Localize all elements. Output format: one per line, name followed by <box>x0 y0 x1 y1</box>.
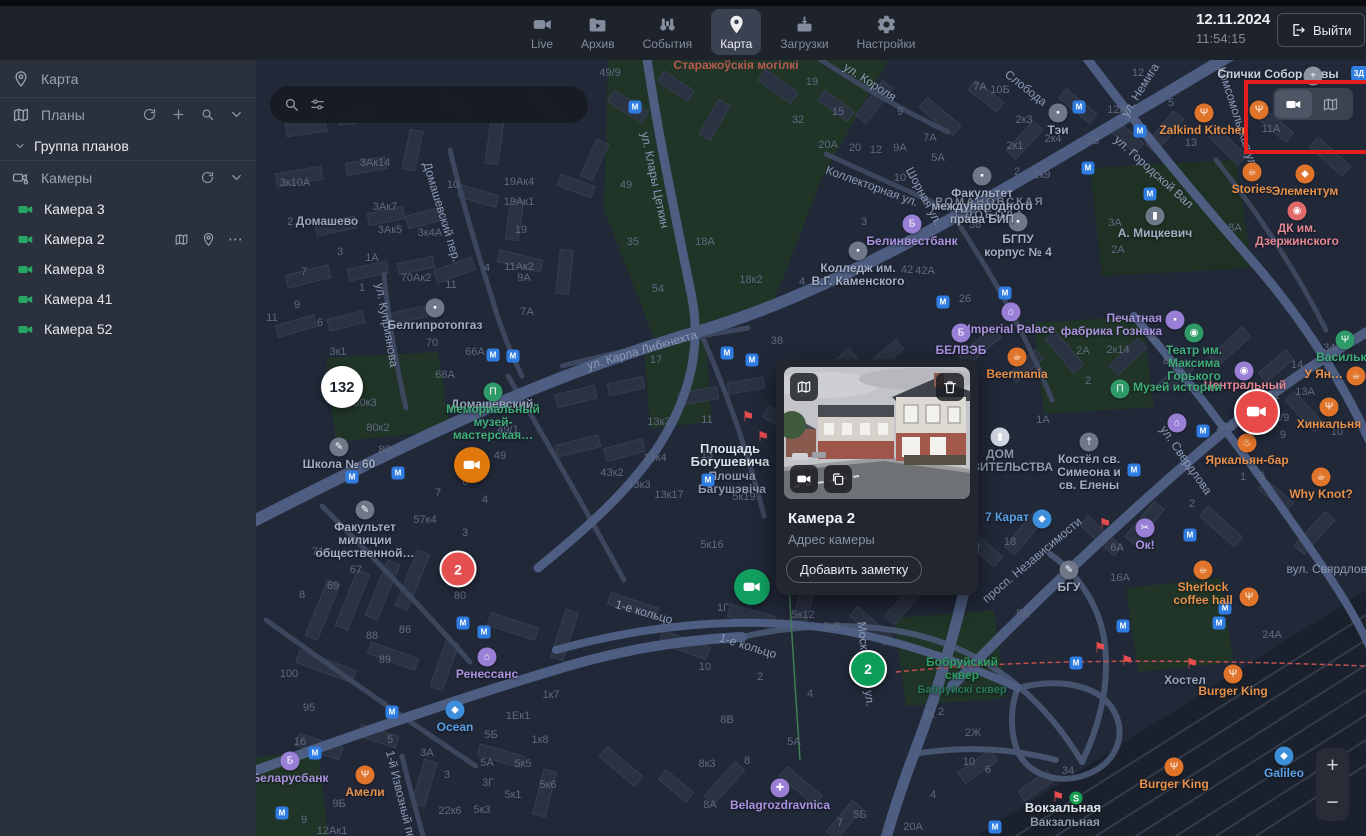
building-number-label: 80к1 <box>378 444 401 456</box>
building-number-label: 1к7 <box>542 689 559 701</box>
transit-stop-icon: М <box>1070 657 1083 670</box>
building-number-label: 54 <box>652 283 664 295</box>
building-number-label: 9 <box>1280 429 1286 441</box>
building-number-label: 70 <box>426 337 438 349</box>
poi-goznak-factory-icon[interactable]: ▪ <box>1166 311 1185 330</box>
poi-elementum-icon[interactable]: ◆ <box>1296 165 1315 184</box>
map-canvas[interactable]: Старажоўскія могілкіул. КороляСлободаул.… <box>256 60 1366 836</box>
building-number-label: 18А <box>695 236 715 248</box>
building-number-label: 16 <box>294 736 306 748</box>
flag-marker-icon: ⚑ <box>1099 516 1112 533</box>
building-number-label: 80 <box>454 590 466 602</box>
building-number-label: 14 <box>1291 359 1303 371</box>
building-number-label: 2К <box>923 709 936 721</box>
poi-bgpu-label: БГПУкорпус № 4 <box>984 233 1052 259</box>
poi-galileo-icon[interactable]: ◆ <box>1275 747 1294 766</box>
transit-stop-icon: М <box>1082 162 1095 175</box>
transit-stop-icon: М <box>457 617 470 630</box>
camera-name: Камера 52 <box>44 321 244 337</box>
poi-why-knot-label: Why Knot? <box>1289 488 1352 501</box>
camera-marker[interactable] <box>454 447 490 483</box>
building-number-label: 4 <box>484 262 490 274</box>
chevron-down-icon[interactable] <box>229 170 244 185</box>
transit-stop-icon: М <box>746 354 759 367</box>
building-number-label: 1А <box>365 252 378 264</box>
poi-burger-king-1-icon[interactable]: Ψ <box>1224 665 1243 684</box>
transit-stop-icon: М <box>1144 188 1157 201</box>
poi-vasilki-label: Васильки <box>1316 351 1366 364</box>
nav-settings[interactable]: Настройки <box>848 9 925 55</box>
poi-why-knot-icon[interactable]: ☕ <box>1312 468 1331 487</box>
poi-burger-king-2-icon[interactable]: Ψ <box>1165 758 1184 777</box>
building-number-label: 2к14 <box>1106 344 1129 356</box>
poi-dom-pravitelstva-icon[interactable]: ▮ <box>991 428 1010 447</box>
building-number-label: 12 <box>870 144 882 156</box>
nav-label: Настройки <box>857 38 916 50</box>
nav-downloads[interactable]: Загрузки <box>771 9 837 55</box>
map-cluster-marker[interactable]: 2 <box>849 650 887 688</box>
search-input[interactable] <box>335 96 575 114</box>
poi-musey-istorii-icon[interactable]: Π <box>1111 380 1130 399</box>
flag-marker-icon: ⚑ <box>742 409 755 426</box>
refresh-icon[interactable] <box>200 170 215 185</box>
chevron-down-icon[interactable] <box>229 107 244 122</box>
building-number-label: 49 <box>494 450 506 462</box>
folded-map-icon <box>1322 96 1339 113</box>
building-number-label: 32 <box>792 114 804 126</box>
poi-tei-label: Тэи <box>1047 124 1068 137</box>
sidebar-item-plans[interactable]: Планы <box>0 98 256 131</box>
flag-marker-icon: ⚑ <box>1094 640 1107 657</box>
building-number-label: 5к6 <box>539 779 556 791</box>
flag-marker-icon: ⚑ <box>1052 789 1065 806</box>
building-number-label: 49 <box>620 179 632 191</box>
transit-stop-icon: М <box>999 287 1012 300</box>
poi-hinkalnya-icon[interactable]: Ψ <box>1320 398 1339 417</box>
building-number-label: 5А <box>480 757 493 769</box>
camera-marker[interactable] <box>734 569 770 605</box>
camera-status-icon <box>17 201 34 218</box>
poi-kostel-simeona-icon[interactable]: † <box>1080 433 1099 452</box>
poi-fakultet-milicii-icon[interactable]: ✎ <box>356 501 375 520</box>
poi-bgu-label: БГУ <box>1058 581 1081 594</box>
building-number-label: 86 <box>399 624 411 636</box>
poi-mickiewicz-monument-label: А. Мицкевич <box>1118 227 1192 240</box>
building-number-label: 7А <box>923 132 936 144</box>
building-number-label: 5к12 <box>791 609 814 621</box>
poi-college-kamenskogo-icon[interactable]: ▪ <box>849 242 868 261</box>
video-camera-icon <box>796 471 812 487</box>
transit-stop-icon: М <box>702 474 715 487</box>
building-number-label: 20 <box>849 142 861 154</box>
nav-live[interactable]: Live <box>522 9 562 55</box>
logout-button[interactable]: Выйти <box>1277 13 1365 47</box>
search-icon[interactable] <box>200 107 215 122</box>
gear-icon <box>876 14 897 35</box>
building-number-label: 70Ак2 <box>401 272 432 284</box>
map-search[interactable] <box>270 86 588 123</box>
show-on-plan-button[interactable] <box>790 373 818 401</box>
building-number-label: 5к3 <box>473 804 490 816</box>
poi-ameli-label: Амели <box>345 786 384 799</box>
building-number-label: 9Б <box>332 798 345 810</box>
folded-map-icon <box>12 106 30 124</box>
poi-goznak-factory-label: Печатнаяфабрика Гознака <box>1061 312 1162 338</box>
poi-ok-salon-icon[interactable]: ✂ <box>1136 519 1155 538</box>
poi-hotel-east-icon[interactable]: ⌂ <box>1168 414 1187 433</box>
sidebar-map-label: Карта <box>41 71 244 87</box>
poi-school-60-icon[interactable]: ✎ <box>330 438 349 457</box>
poi-renaissance-label: Ренессанс <box>456 668 518 681</box>
building-number-label: 10 <box>963 756 975 768</box>
building-number-label: 15 <box>832 106 844 118</box>
poi-renaissance-icon[interactable]: ⌂ <box>478 648 497 667</box>
building-number-label: 5А <box>1016 608 1029 620</box>
building-number-label: 26 <box>959 293 971 305</box>
poi-restaurant-east-icon[interactable]: Ψ <box>1240 588 1259 607</box>
building-number-label: 4 <box>930 789 936 801</box>
poi-belarusbank-label: Беларусбанк <box>256 772 329 785</box>
refresh-icon[interactable] <box>142 107 157 122</box>
building-number-label: 2 <box>938 706 944 718</box>
building-number-label: 88 <box>366 630 378 642</box>
building-number-label: 5 <box>387 734 393 746</box>
poi-u-yan-label: У Ян… <box>1304 368 1343 381</box>
poi-ocean-icon[interactable]: ◆ <box>446 701 465 720</box>
building-number-label: 4 <box>482 494 488 506</box>
poi-tei-icon[interactable]: ▪ <box>1049 104 1068 123</box>
building-number-label: 20А <box>903 821 923 833</box>
camera-list-item[interactable]: Камера 41 <box>0 284 256 314</box>
building-number-label: 7 <box>435 487 441 499</box>
poi-ok-salon-label: Ок! <box>1135 539 1154 552</box>
poi-beermania-icon[interactable]: ☕ <box>1008 348 1027 367</box>
building-number-label: 38 <box>771 335 783 347</box>
transit-stop-icon: М <box>309 747 322 760</box>
poi-ocean-label: Ocean <box>437 721 474 734</box>
poi-theatre-mask-icon[interactable]: ◉ <box>1235 362 1254 381</box>
zoom-out-button[interactable]: − <box>1316 786 1349 820</box>
transit-stop-icon: М <box>1197 425 1210 438</box>
poi-dk-dzerzhinskogo-label: ДК им.Дзержинского <box>1255 222 1339 248</box>
building-number-label: 95 <box>303 702 315 714</box>
delete-camera-button[interactable] <box>936 373 964 401</box>
cameras-group-icon <box>12 169 30 187</box>
building-number-label: 3Ак5 <box>378 224 402 236</box>
building-number-label: 42А <box>915 265 935 277</box>
sidebar-item-map[interactable]: Карта <box>0 60 256 98</box>
building-number-label: 5к19 <box>732 491 755 503</box>
building-number-label: 11А <box>1262 123 1281 135</box>
nav-label: Карта <box>720 38 752 50</box>
poi-7-karat-icon[interactable]: ◆ <box>1033 510 1052 529</box>
camera-list-item[interactable]: Камера 8 <box>0 254 256 284</box>
poi-ameli-icon[interactable]: Ψ <box>356 766 375 785</box>
show-on-plan-icon[interactable] <box>174 232 189 247</box>
transit-stop-icon: М <box>487 349 500 362</box>
nav-archive[interactable]: Архив <box>572 9 624 55</box>
building-number-label: 80к2 <box>366 422 389 434</box>
building-number-label: 89 <box>379 654 391 666</box>
poi-musey-istorii-label: Музей истории <box>1133 381 1222 394</box>
poi-sherlock-coffee-icon[interactable]: ☕ <box>1194 561 1213 580</box>
poi-belveb-icon[interactable]: Б <box>952 324 971 343</box>
camera-list: Камера 3Камера 2⋯Камера 8Камера 41Камера… <box>0 194 256 344</box>
building-number-label: 5к1 <box>504 789 521 801</box>
transit-stop-icon: М <box>937 296 950 309</box>
building-number-label: 5Б <box>484 729 497 741</box>
poi-hinkalnya-label: Хинкальня <box>1297 418 1362 431</box>
building-number-label: 1Г <box>717 602 729 614</box>
building-number-label: 2 <box>287 216 293 228</box>
building-number-label: 2 <box>1014 166 1020 178</box>
camera-popup: Камера 2 Адрес камеры Добавить заметку <box>776 359 978 595</box>
building-number-label: 3к10А <box>280 177 311 189</box>
building-number-label: 19 <box>806 76 818 88</box>
building-number-label: 5Б <box>853 809 866 821</box>
sidebar-item-plan-group[interactable]: Группа планов <box>0 131 256 161</box>
building-number-label: 10 <box>447 179 459 191</box>
add-plan-icon[interactable] <box>171 107 186 122</box>
view-3d-badge[interactable]: 3Д <box>1351 66 1366 81</box>
building-number-label: 5к5 <box>514 758 531 770</box>
building-number-label: 1к8 <box>531 734 548 746</box>
building-number-label: 9А <box>893 142 906 154</box>
events-icon <box>657 14 678 35</box>
poi-galileo-label: Galileo <box>1264 767 1304 780</box>
cameras-layer-toggle[interactable] <box>1275 90 1312 118</box>
building-number-label: 4 <box>799 276 805 288</box>
search-icon <box>283 96 300 113</box>
nav-map[interactable]: Карта <box>711 9 761 55</box>
flag-marker-icon: ⚑ <box>1121 653 1134 670</box>
poi-memorial-musey-label: Мемориальныймузей-мастерская… <box>446 403 540 442</box>
nav-label: Live <box>531 38 553 50</box>
poi-bgu-icon[interactable]: ✎ <box>1060 561 1079 580</box>
building-number-label: 2к1 <box>1006 140 1023 152</box>
map-cluster-marker[interactable]: 132 <box>321 366 363 408</box>
plans-layer-toggle[interactable] <box>1312 90 1349 118</box>
building-number-label: 6 <box>317 317 323 329</box>
poi-belinvestbank-label: Белинвестбанк <box>866 235 957 248</box>
building-number-label: 7А <box>973 81 986 93</box>
building-number-label: 5к16 <box>700 539 723 551</box>
building-number-label: 3Ак7 <box>373 201 397 213</box>
building-number-label: 100 <box>280 668 298 680</box>
logout-label: Выйти <box>1313 23 1352 38</box>
archive-folder-icon <box>587 14 608 35</box>
transit-stop-icon: М <box>507 350 520 363</box>
building-number-label: 43к3 <box>627 479 650 491</box>
poi-memorial-musey-icon[interactable]: Π <box>484 383 503 402</box>
more-actions-icon[interactable]: ⋯ <box>228 230 244 248</box>
building-number-label: 68А <box>435 369 455 381</box>
building-number-label: 10Б <box>990 84 1009 96</box>
building-number-label: 19Ак4 <box>504 176 535 188</box>
building-number-label: 35 <box>627 236 639 248</box>
main-navigation: Live Архив События Карта Загрузки Настро… <box>522 7 924 57</box>
logout-icon <box>1290 22 1306 38</box>
building-number-label: 8к3 <box>698 758 715 770</box>
building-number-label: 3 <box>337 246 343 258</box>
building-number-label: 2к3 <box>1015 114 1032 126</box>
map-cluster-marker[interactable]: 2 <box>440 551 477 588</box>
map-pin-icon <box>726 14 747 35</box>
show-on-map-icon[interactable] <box>201 232 216 247</box>
poi-yarkalyan-bar-icon[interactable]: ♨ <box>1238 434 1257 453</box>
cameras-section-label: Камеры <box>41 170 189 186</box>
building-number-label: 6А <box>1110 542 1123 554</box>
poi-sobor-plus-marker-icon[interactable]: + <box>1304 67 1323 86</box>
poi-stories-icon[interactable]: ☕ <box>1243 163 1262 182</box>
building-number-label: 13к3 <box>647 416 670 428</box>
poi-belgiprotopgaz-icon[interactable]: ▪ <box>426 299 445 318</box>
building-number-label: 3Ак14 <box>360 157 391 169</box>
building-number-label: 8 <box>299 589 305 601</box>
building-number-label: 12А <box>1107 104 1127 116</box>
copy-window-icon <box>830 471 846 487</box>
building-number-label: 16А <box>1110 572 1130 584</box>
building-number-label: 9 <box>294 299 300 311</box>
building-number-label: 5 <box>1168 97 1174 109</box>
building-number-label: 19Ак1 <box>504 196 535 208</box>
poi-gorky-theatre-icon[interactable]: ◉ <box>1185 324 1204 343</box>
camera-status-icon <box>17 321 34 338</box>
camera-list-item[interactable]: Камера 2⋯ <box>0 224 256 254</box>
poi-u-yan-icon[interactable]: ☕ <box>1347 367 1366 386</box>
poi-burger-king-2-label: Burger King <box>1139 778 1208 791</box>
building-number-label: 13к17 <box>654 489 683 501</box>
poi-imperial-palace-label: Imperial Palace <box>967 323 1054 336</box>
building-number-label: 2Ж <box>965 727 981 739</box>
camera-name: Камера 41 <box>44 291 244 307</box>
building-number-label: 3 <box>444 769 450 781</box>
poi-stories-label: Stories <box>1232 183 1273 196</box>
building-number-label: 18к2 <box>739 274 762 286</box>
poi-imperial-palace-icon[interactable]: ⌂ <box>1002 303 1021 322</box>
building-number-label: 3А <box>420 747 433 759</box>
building-number-label: 7А <box>520 306 533 318</box>
building-number-label: 18 <box>1004 536 1016 548</box>
poi-college-kamenskogo-label: Колледж им.В.Г. Каменского <box>812 262 905 288</box>
transit-stop-icon: М <box>1117 620 1130 633</box>
building-number-label: 24А <box>1262 629 1282 641</box>
building-number-label: 12Ак1 <box>317 825 348 836</box>
place-label: Вакзальная <box>1030 816 1100 829</box>
poi-yarkalyan-bar-label: Яркальян-бар <box>1205 454 1288 467</box>
popup-camera-title: Камера 2 <box>788 510 970 527</box>
transit-stop-icon: М <box>1073 101 1086 114</box>
transit-stop-icon: М <box>989 821 1002 834</box>
poi-belgiprotopgaz-label: Белгипротопгаз <box>388 319 483 332</box>
building-number-label: 3 <box>462 527 468 539</box>
building-number-label: 1 <box>359 282 365 294</box>
building-number-label: 11 <box>445 279 456 291</box>
add-note-button[interactable]: Добавить заметку <box>786 556 922 583</box>
building-number-label: 5А <box>787 736 800 748</box>
building-number-label: 5А <box>931 152 944 164</box>
poi-belinvestbank-icon[interactable]: Б <box>903 215 922 234</box>
sidebar-plans-label: Планы <box>41 107 131 123</box>
open-in-new-window-button[interactable] <box>824 465 852 493</box>
camera-list-item[interactable]: Камера 3 <box>0 194 256 224</box>
transit-stop-icon: М <box>1213 617 1226 630</box>
sidebar: Карта Планы Группа планов Камеры Камера … <box>0 60 256 836</box>
building-number-label: 8А <box>1228 222 1241 234</box>
poi-dk-dzerzhinskogo-icon[interactable]: ◉ <box>1288 202 1307 221</box>
camera-marker[interactable] <box>1234 389 1280 435</box>
building-number-label: 43к2 <box>600 467 623 479</box>
poi-gorky-theatre-label: Театр им.МаксимаГорького <box>1166 344 1222 383</box>
building-number-label: 10 <box>894 172 906 184</box>
transit-stop-icon: М <box>1134 125 1147 138</box>
place-label: Домашево <box>296 215 358 228</box>
transit-stop-icon: М <box>346 471 359 484</box>
building-number-label: 4 <box>807 688 813 700</box>
poi-belarusbank-icon[interactable]: Б <box>281 752 300 771</box>
suburban-station-icon: S <box>1070 792 1083 805</box>
building-number-label: 19 <box>515 224 527 236</box>
poi-restaurant-near-sobor-icon[interactable]: Ψ <box>1250 101 1269 120</box>
building-number-label: 34 <box>1062 765 1074 777</box>
flag-marker-icon: ⚑ <box>757 429 770 446</box>
building-number-label: 11 <box>701 414 712 426</box>
building-number-label: 8В <box>720 714 733 726</box>
poi-belagrozdravnica-icon[interactable]: ✚ <box>771 779 790 798</box>
building-number-label: 28 <box>1087 135 1099 147</box>
transit-stop-icon: М <box>1128 464 1141 477</box>
building-number-label: 1А <box>1036 414 1049 426</box>
poi-zalkind-kitchen-icon[interactable]: Ψ <box>1195 104 1214 123</box>
camera-name: Камера 2 <box>44 231 164 247</box>
building-number-label: 10А <box>1215 421 1235 433</box>
building-number-label: 8А <box>703 799 716 811</box>
building-number-label: 13 <box>1185 137 1197 149</box>
building-number-label: 67 <box>350 564 362 576</box>
poi-vasilki-icon[interactable]: Ψ <box>1336 331 1355 350</box>
building-number-label: 2к9 <box>1033 169 1050 181</box>
open-live-button[interactable] <box>790 465 818 493</box>
transit-stop-icon: М <box>276 807 289 820</box>
building-number-label: 2 <box>1189 498 1195 510</box>
nav-events[interactable]: События <box>634 9 702 55</box>
building-number-label: 8 <box>744 755 750 767</box>
poi-mickiewicz-monument-icon[interactable]: ▮ <box>1146 207 1165 226</box>
poi-school-60-label: Школа № 60 <box>303 458 376 471</box>
camera-preview-image <box>784 367 970 499</box>
poi-zalkind-kitchen-label: Zalkind Kitchen <box>1159 124 1248 137</box>
folded-map-icon <box>796 379 812 395</box>
camera-list-item[interactable]: Камера 52 <box>0 314 256 344</box>
poi-elementum-label: Элементум <box>1272 185 1339 198</box>
filter-icon[interactable] <box>309 96 326 113</box>
place-label: Бабруйскі сквер <box>917 684 1006 697</box>
chevron-down-icon[interactable] <box>14 140 26 152</box>
building-number-label: 66А <box>465 346 485 358</box>
building-number-label: 11 <box>266 312 277 324</box>
poi-7-karat-label: 7 Карат <box>985 511 1029 524</box>
zoom-in-button[interactable]: + <box>1316 749 1349 783</box>
poi-fakultet-bip-icon[interactable]: ▪ <box>973 167 992 186</box>
poi-fakultet-milicii-label: Факультетмилицииобщественной… <box>315 521 414 560</box>
popup-camera-address: Адрес камеры <box>788 532 970 547</box>
building-number-label: 22к6 <box>438 805 461 817</box>
map-pin-icon <box>12 70 30 88</box>
datetime: 12.11.2024 11:54:15 <box>1196 11 1270 46</box>
building-number-label: 3Г <box>482 777 494 789</box>
sidebar-item-cameras[interactable]: Камеры <box>0 161 256 194</box>
building-number-label: 1Ек1 <box>506 710 530 722</box>
